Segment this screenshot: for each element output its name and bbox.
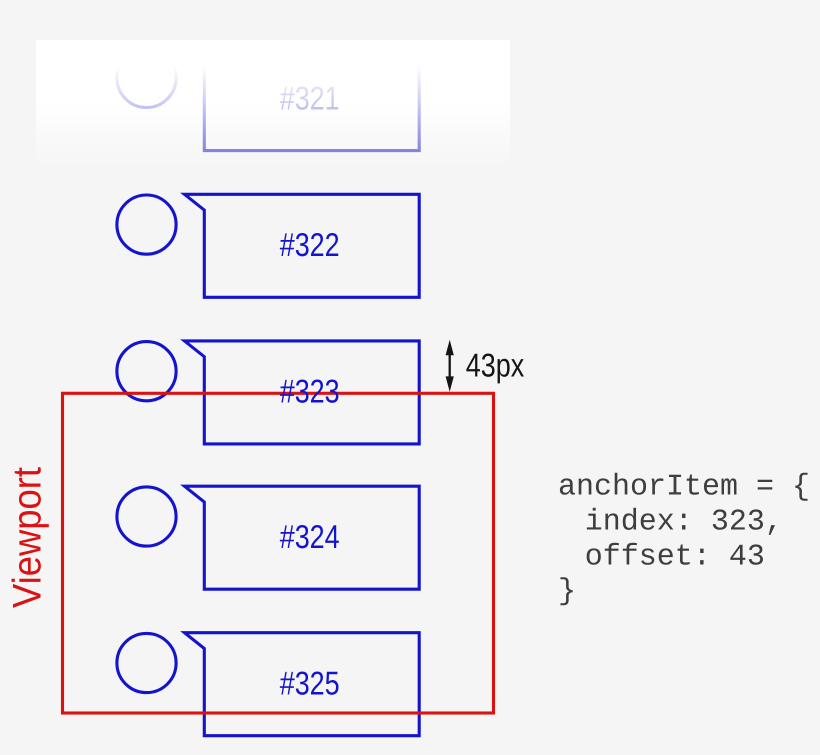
svg-text:}: } (558, 575, 576, 609)
svg-text:#324: #324 (280, 518, 340, 555)
svg-text:#321: #321 (280, 79, 340, 116)
svg-text:Viewport: Viewport (6, 467, 50, 608)
svg-text:43px: 43px (466, 347, 525, 384)
svg-text:anchorItem = {: anchorItem = { (558, 471, 810, 505)
svg-text:offset: 43: offset: 43 (585, 541, 765, 575)
svg-text:#325: #325 (280, 665, 340, 702)
svg-text:#322: #322 (280, 226, 340, 263)
svg-text:#323: #323 (280, 373, 340, 410)
svg-text:index: 323,: index: 323, (585, 506, 783, 540)
